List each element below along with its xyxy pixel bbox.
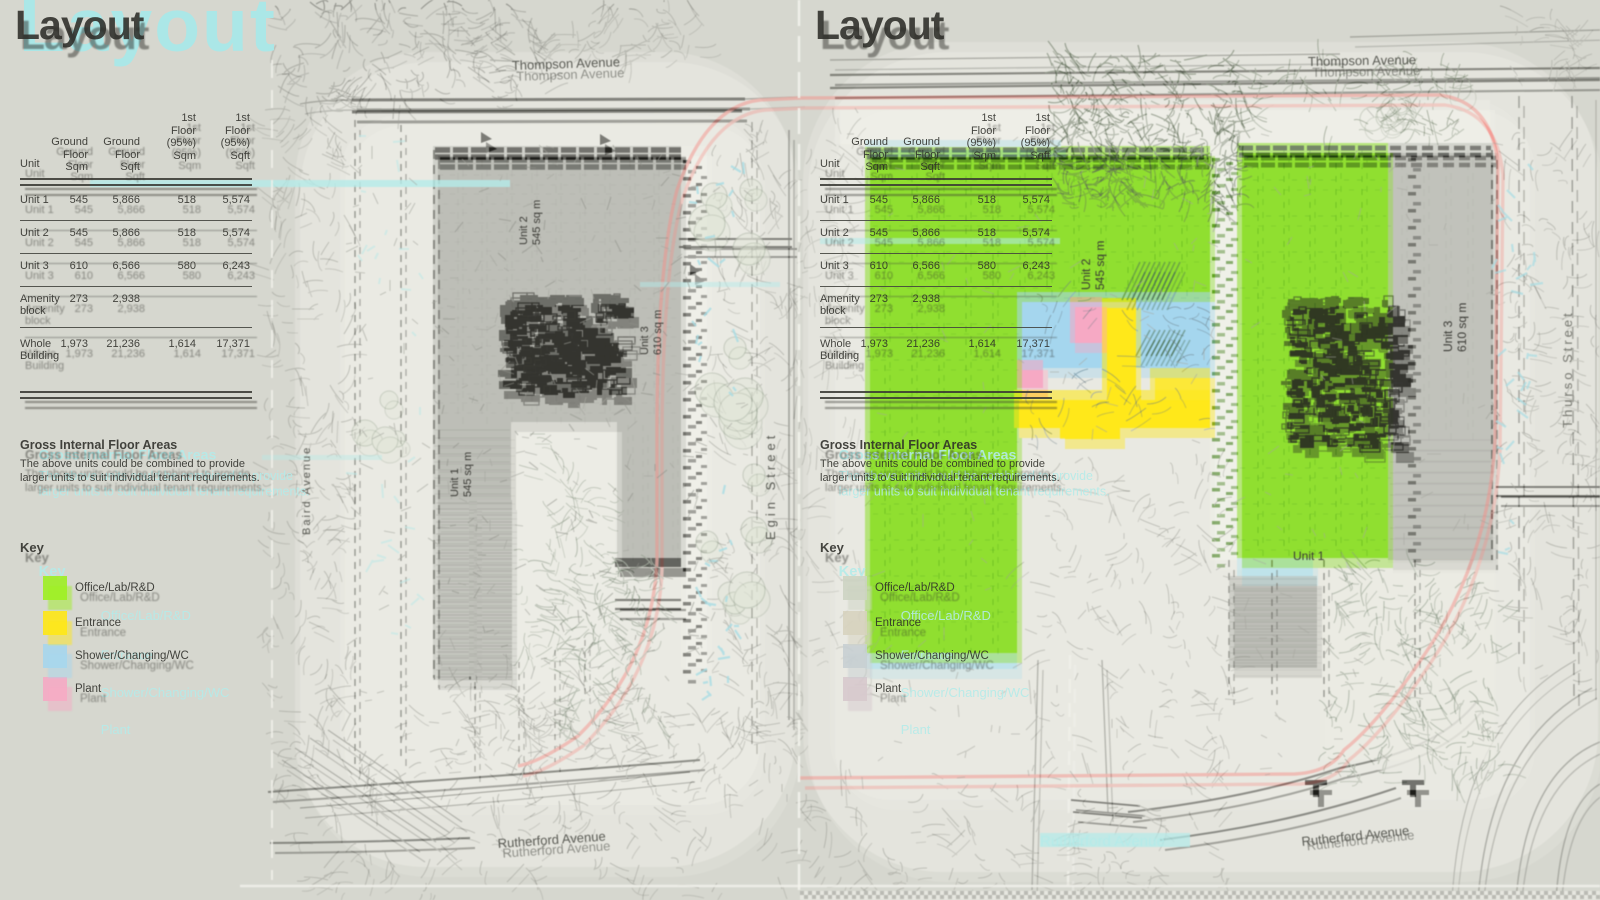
svg-text:Unit 1: Unit 1	[1293, 549, 1325, 563]
svg-text:Unit 2: Unit 2	[518, 216, 530, 245]
svg-text:Thompson Avenue: Thompson Avenue	[1312, 63, 1420, 80]
svg-text:Unit 3: Unit 3	[639, 326, 651, 355]
svg-text:Egin Street: Egin Street	[763, 432, 778, 540]
svg-text:Unit 3: Unit 3	[1441, 320, 1455, 352]
svg-text:545 sq m: 545 sq m	[462, 452, 474, 497]
svg-text:545 sq m: 545 sq m	[531, 200, 543, 245]
svg-text:610 sq m: 610 sq m	[1455, 303, 1469, 352]
svg-text:610 sq m: 610 sq m	[652, 310, 664, 355]
svg-text:Thurso Street: Thurso Street	[1560, 310, 1575, 428]
svg-text:Unit 1: Unit 1	[449, 468, 461, 497]
